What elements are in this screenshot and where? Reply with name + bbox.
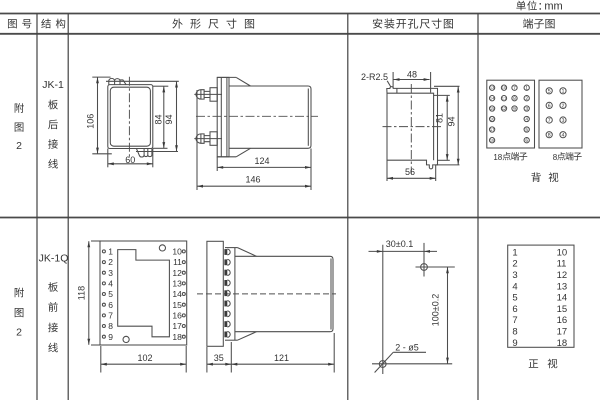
svg-text:2 - ø5: 2 - ø5 [395, 342, 419, 352]
svg-text:11: 11 [173, 257, 182, 267]
svg-text:2: 2 [16, 140, 22, 152]
svg-text:3: 3 [108, 268, 113, 278]
svg-text:2: 2 [108, 257, 113, 267]
svg-text:56: 56 [405, 167, 415, 177]
svg-text:1: 1 [512, 247, 517, 258]
svg-text:16: 16 [172, 310, 182, 320]
svg-text:30±0.1: 30±0.1 [386, 239, 413, 249]
svg-text:13: 13 [557, 281, 568, 292]
svg-text:106: 106 [85, 114, 95, 129]
svg-text:JK-1Q: JK-1Q [39, 253, 69, 265]
svg-text:118: 118 [76, 286, 86, 300]
svg-text:13: 13 [172, 278, 182, 288]
svg-text:15: 15 [557, 304, 568, 315]
svg-text:6: 6 [512, 304, 517, 315]
svg-text:8: 8 [108, 321, 113, 331]
svg-text:124: 124 [254, 156, 269, 166]
svg-text:9: 9 [108, 332, 113, 342]
svg-text:94: 94 [446, 116, 456, 126]
svg-text:12: 12 [172, 268, 182, 278]
svg-text:2-R2.5: 2-R2.5 [361, 72, 388, 82]
svg-text:17: 17 [172, 321, 182, 331]
svg-text:JK-1: JK-1 [42, 79, 64, 91]
svg-text:mm: mm [544, 1, 562, 13]
svg-text:8: 8 [512, 327, 517, 338]
svg-text:14: 14 [172, 289, 182, 299]
svg-text:48: 48 [407, 70, 417, 80]
svg-text:15: 15 [172, 300, 182, 310]
svg-text:14: 14 [557, 293, 568, 304]
svg-text:146: 146 [245, 175, 260, 185]
svg-text:17: 17 [557, 327, 568, 338]
svg-text:1: 1 [108, 247, 113, 257]
svg-text:7: 7 [512, 315, 517, 326]
svg-text:100±0.2: 100±0.2 [430, 294, 440, 326]
svg-text:4: 4 [108, 278, 113, 288]
svg-text:10: 10 [557, 247, 568, 258]
svg-text:11: 11 [557, 259, 567, 270]
svg-text:10: 10 [172, 247, 182, 257]
svg-text:8: 8 [553, 153, 558, 162]
svg-text:102: 102 [137, 353, 152, 363]
svg-text:18: 18 [493, 153, 502, 162]
svg-text:60: 60 [125, 155, 135, 165]
svg-text:9: 9 [512, 338, 517, 349]
svg-text:81: 81 [435, 113, 445, 123]
svg-text:94: 94 [164, 114, 174, 124]
svg-text:16: 16 [557, 315, 568, 326]
svg-text:4: 4 [512, 281, 517, 292]
svg-text:18: 18 [557, 338, 568, 349]
svg-text:12: 12 [557, 270, 568, 281]
svg-text:121: 121 [274, 353, 289, 363]
svg-text:18: 18 [172, 332, 182, 342]
svg-text:2: 2 [16, 326, 22, 338]
svg-text:6: 6 [108, 300, 113, 310]
svg-text:3: 3 [512, 270, 517, 281]
svg-text:7: 7 [108, 310, 113, 320]
svg-text:35: 35 [214, 353, 224, 363]
svg-text:2: 2 [512, 259, 517, 270]
svg-text:84: 84 [154, 114, 164, 124]
svg-text:5: 5 [108, 289, 113, 299]
svg-text:5: 5 [512, 293, 517, 304]
